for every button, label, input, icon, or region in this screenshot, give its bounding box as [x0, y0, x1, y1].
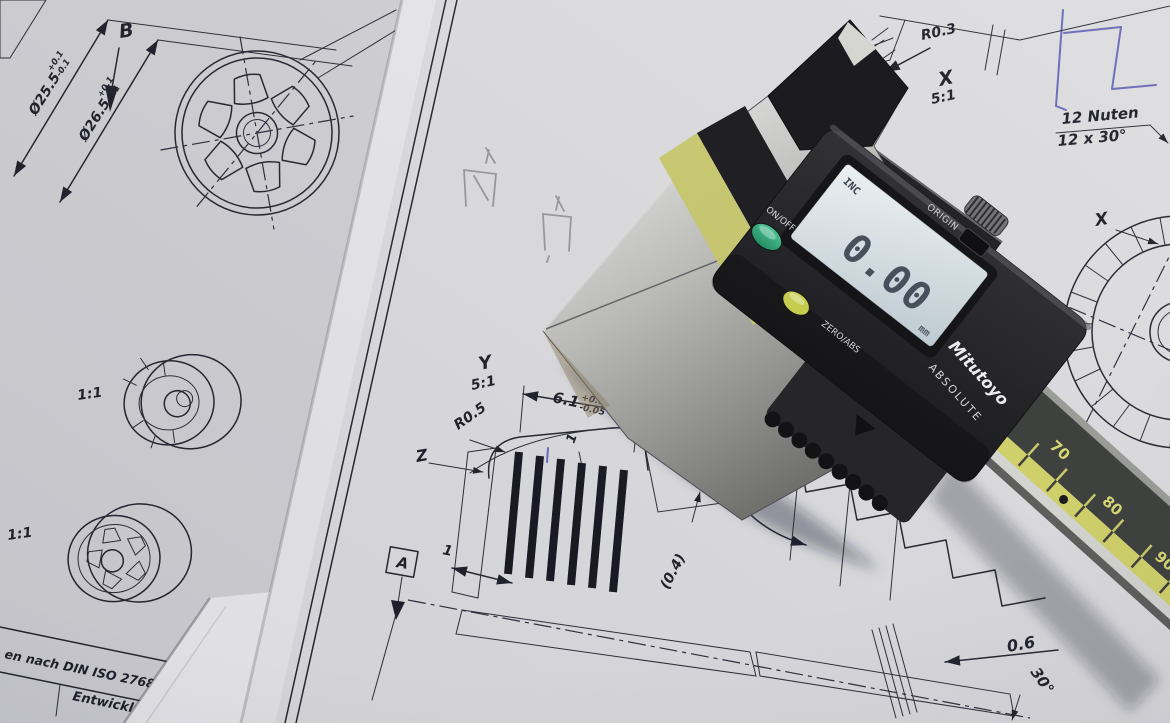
view-b-label: B — [118, 19, 135, 43]
photo-canvas: Ø25.5 +0.1 -0.1 Ø26.5 +0.1 -0.1 B — [0, 0, 1170, 723]
photo-caliper-on-drawings: Ø25.5 +0.1 -0.1 Ø26.5 +0.1 -0.1 B — [0, 0, 1170, 723]
